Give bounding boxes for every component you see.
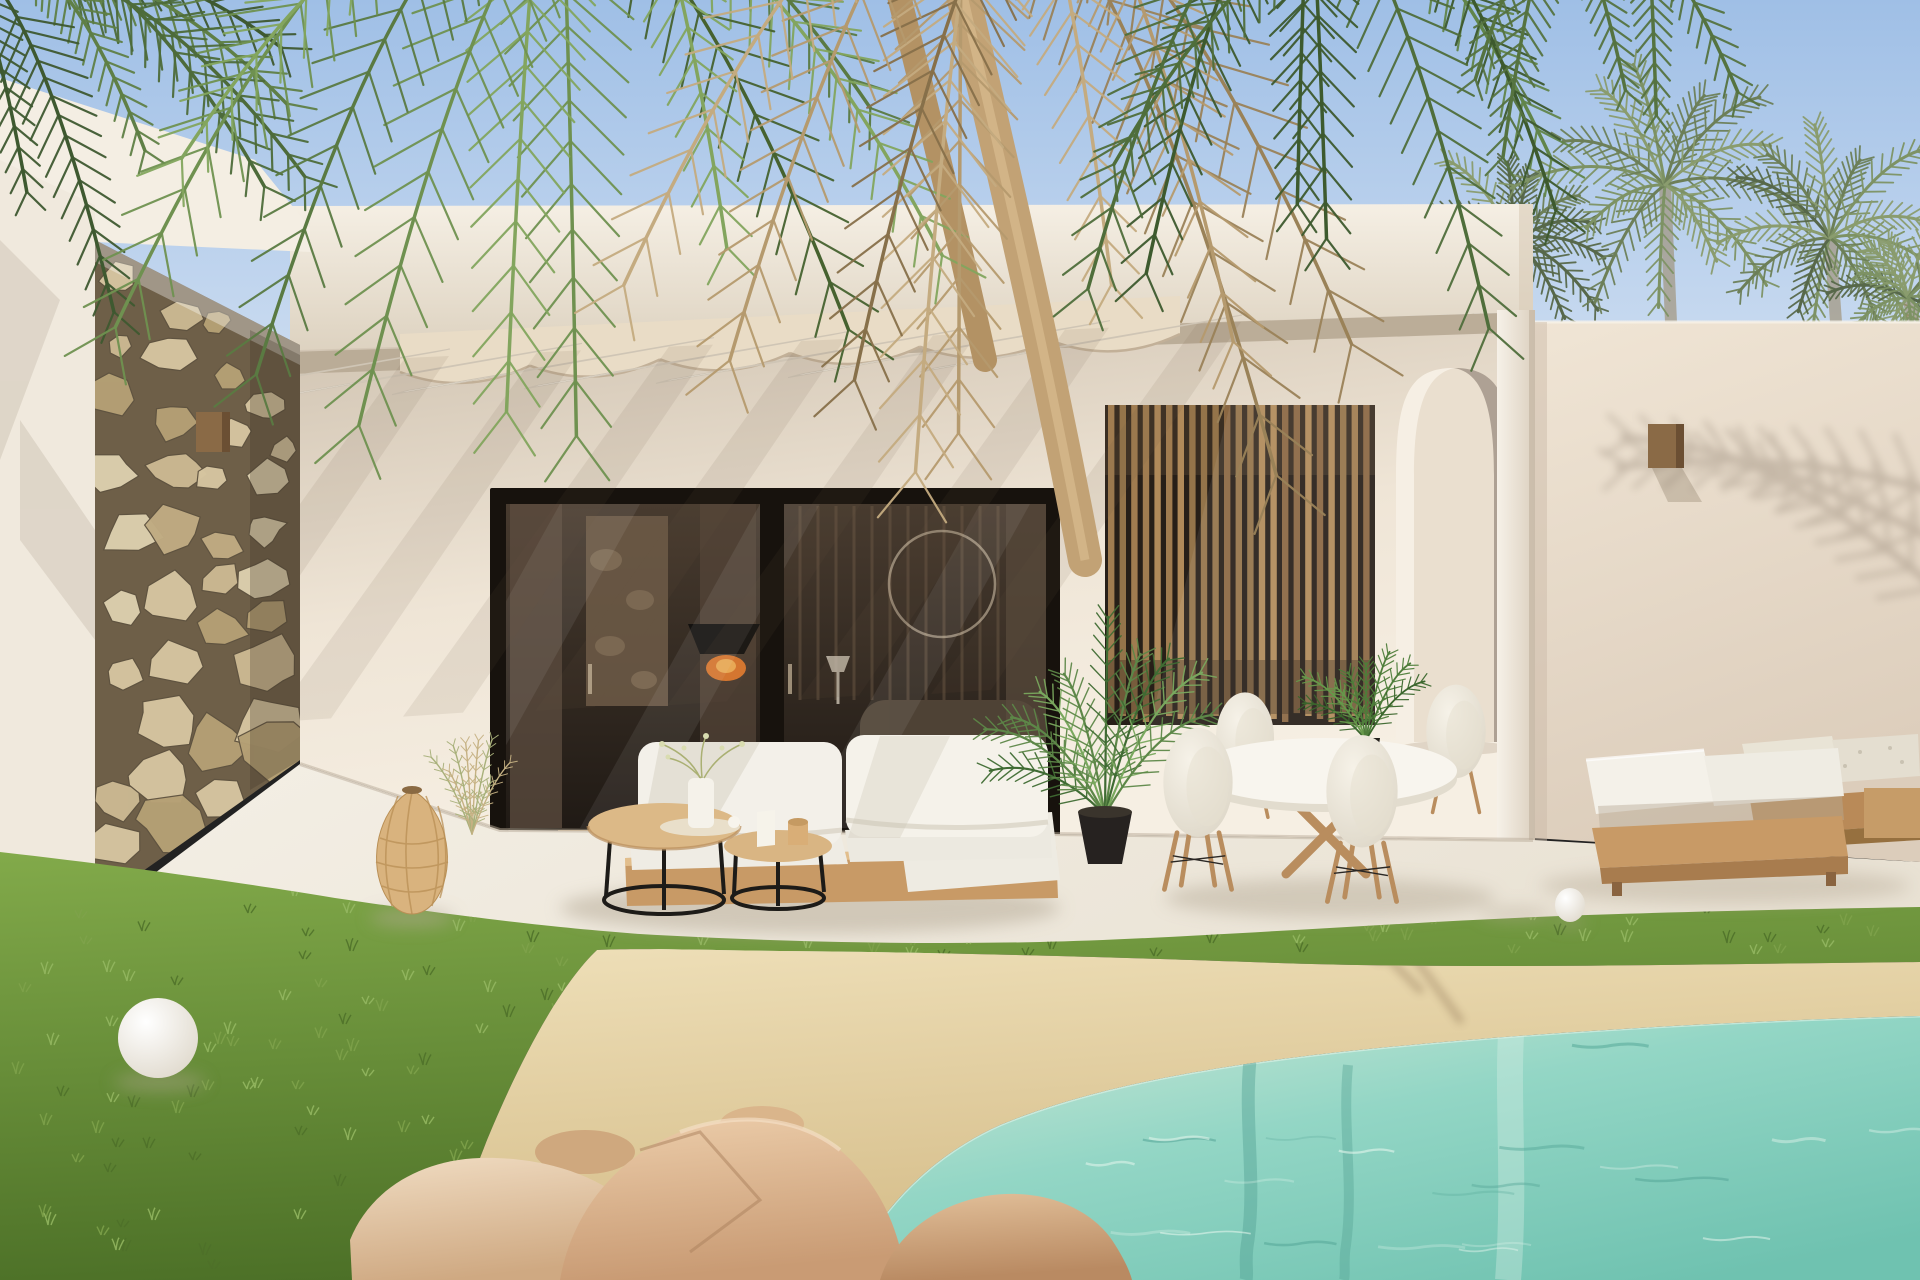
standing-card — [757, 810, 775, 847]
wood-side-table — [1864, 788, 1920, 838]
scene-root — [0, 0, 1920, 1280]
pergola-column — [1493, 310, 1539, 916]
villa-exterior-render — [0, 0, 1920, 1280]
trunk-reflection — [1246, 1060, 1251, 1280]
trunk-reflection — [1344, 1065, 1349, 1280]
vase — [688, 778, 714, 828]
lounger-front — [1586, 748, 1848, 896]
pebble-sphere-lamp — [1555, 888, 1585, 922]
right-wall-corner-shade — [1533, 322, 1547, 842]
small-table-top — [724, 830, 832, 862]
candle-cup — [788, 818, 808, 845]
sphere-floor-lamp — [118, 998, 198, 1078]
stone-wall-sconce-lamp — [196, 412, 230, 452]
fascia-corner-shade — [1519, 204, 1533, 312]
door-handle-right — [788, 664, 792, 694]
